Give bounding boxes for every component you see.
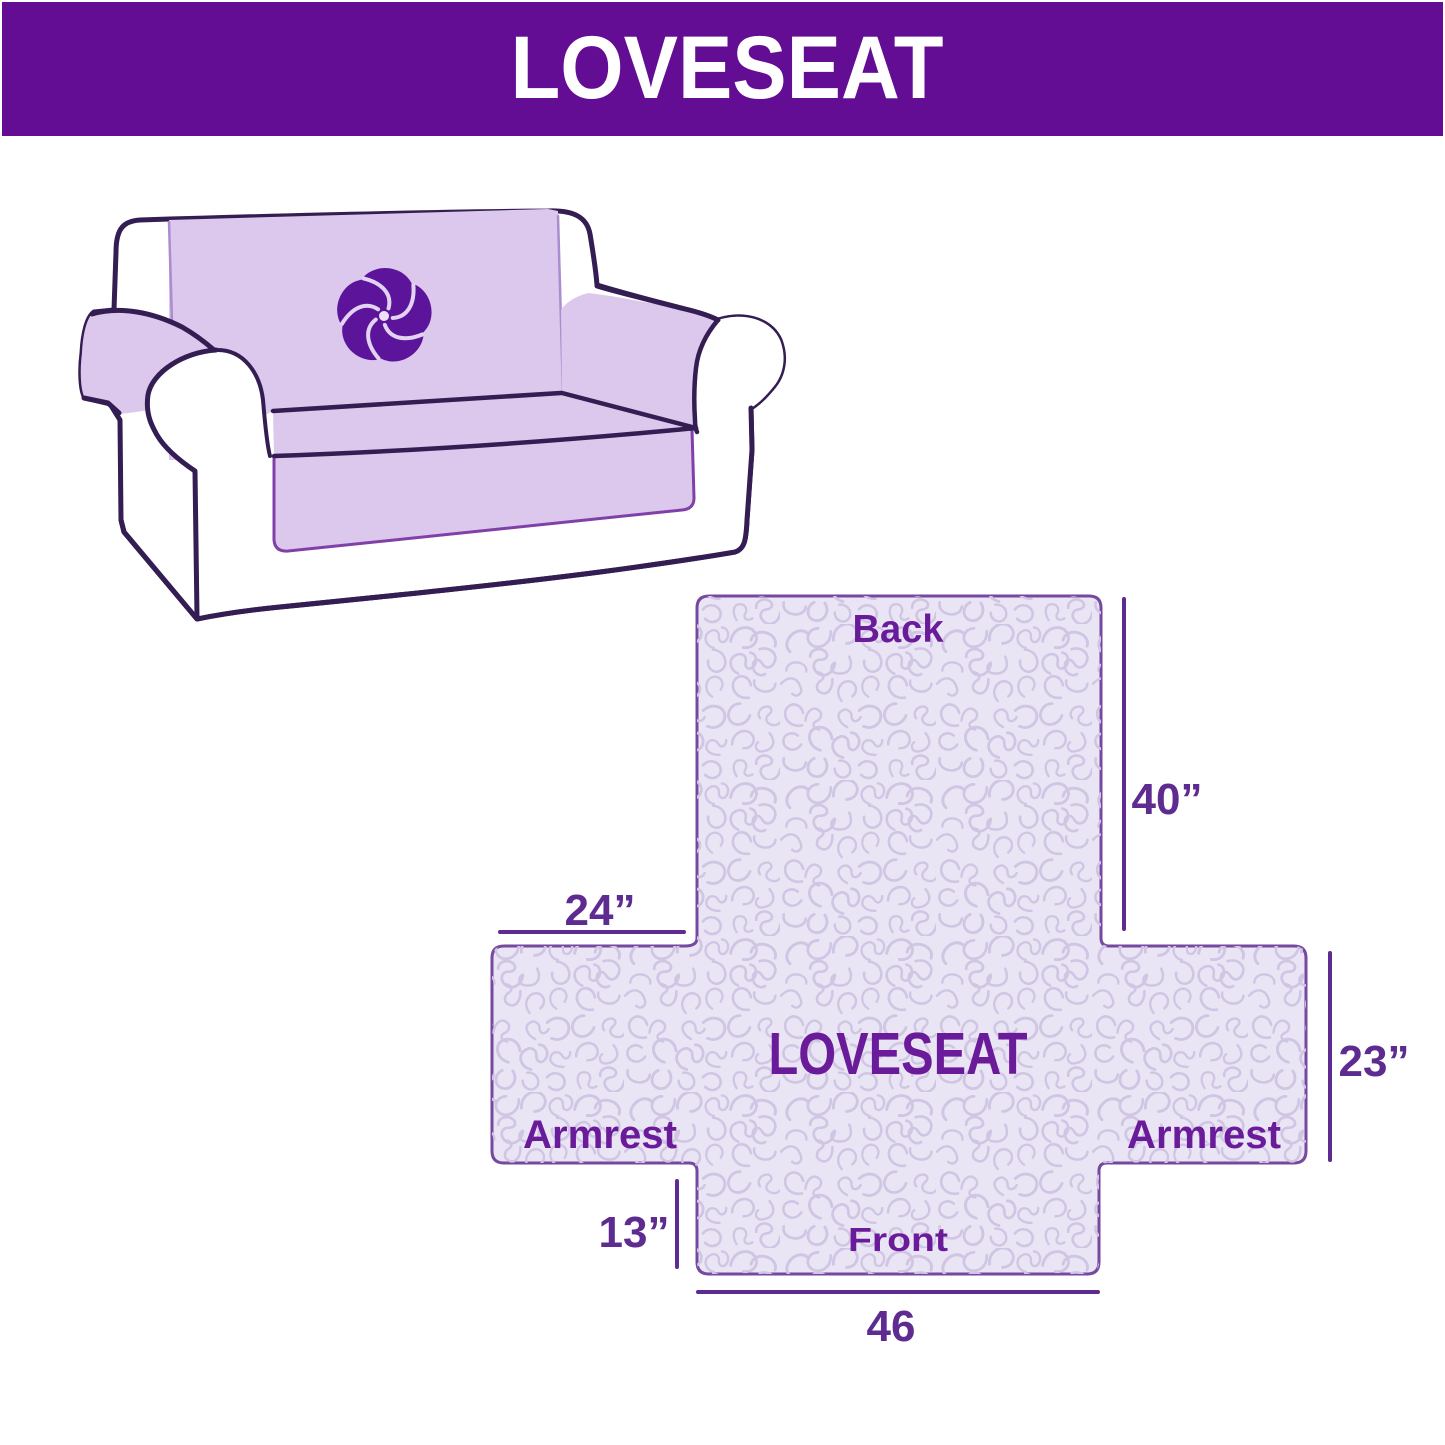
svg-text:Back: Back: [853, 608, 944, 651]
svg-text:Armrest: Armrest: [1127, 1113, 1281, 1157]
svg-text:40”: 40”: [1132, 775, 1203, 824]
svg-text:Armrest: Armrest: [523, 1113, 677, 1157]
svg-text:23”: 23”: [1339, 1037, 1410, 1086]
svg-text:13”: 13”: [599, 1208, 670, 1257]
svg-text:24”: 24”: [565, 886, 636, 935]
svg-text:46: 46: [867, 1302, 916, 1351]
svg-text:LOVESEAT: LOVESEAT: [769, 1021, 1028, 1087]
svg-text:Front: Front: [848, 1221, 948, 1258]
svg-text:LOVESEAT: LOVESEAT: [511, 17, 944, 117]
